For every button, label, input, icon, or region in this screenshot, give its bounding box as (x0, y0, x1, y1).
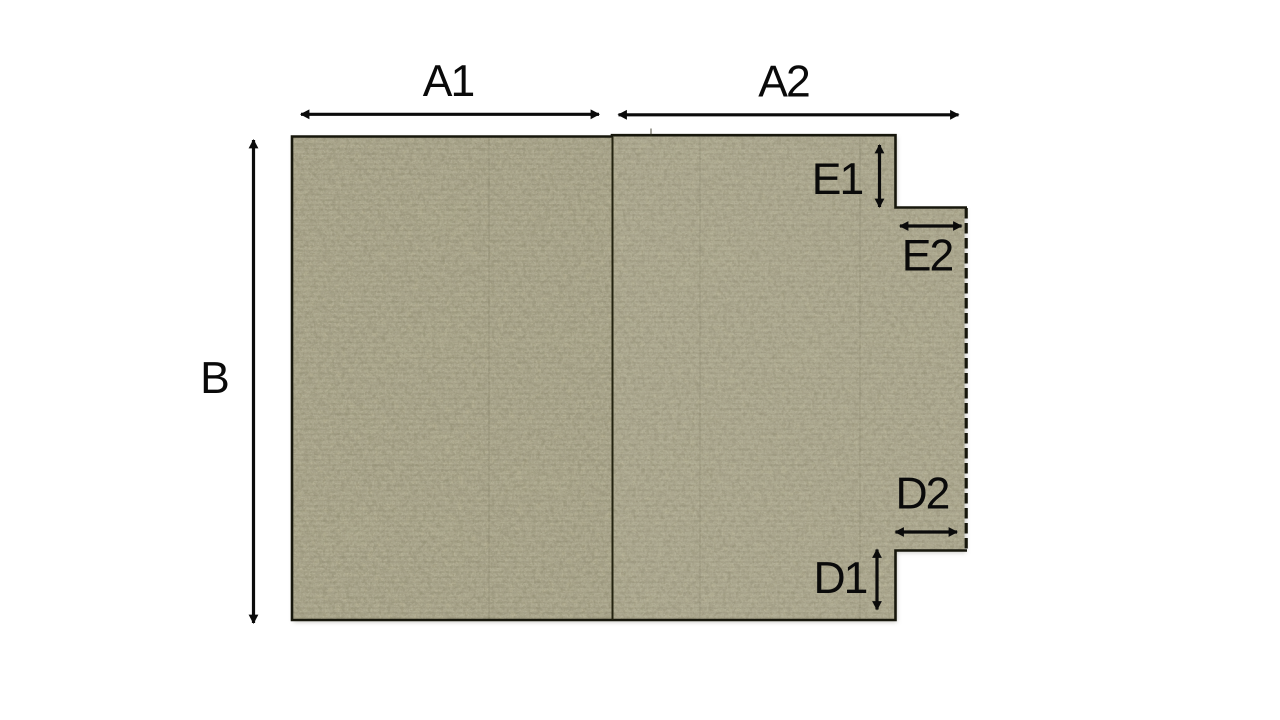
svg-text:D2: D2 (896, 470, 949, 519)
svg-text:E2: E2 (902, 232, 953, 281)
svg-text:A2: A2 (758, 58, 809, 107)
svg-text:E1: E1 (812, 155, 863, 204)
svg-text:B: B (200, 354, 228, 403)
svg-text:D1: D1 (814, 554, 867, 603)
svg-text:A1: A1 (423, 57, 474, 106)
